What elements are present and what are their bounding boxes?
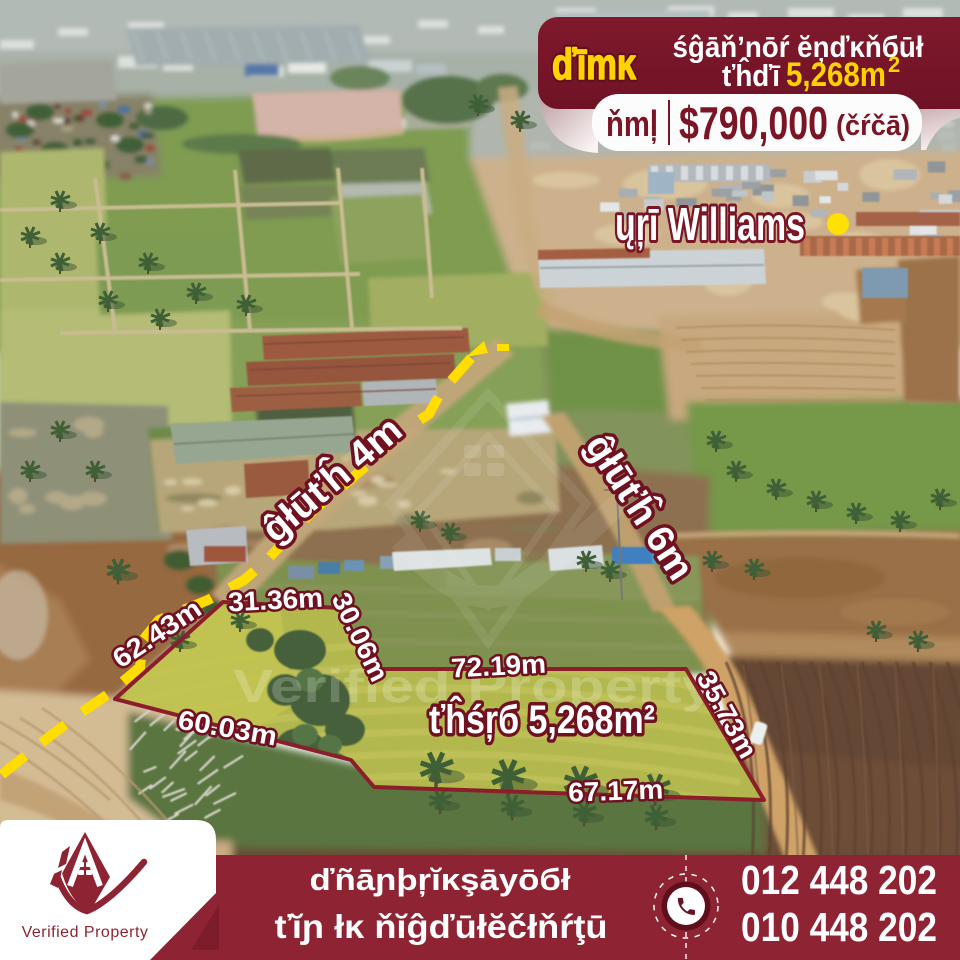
svg-text:ťĭɲ łĸ ňĭĝďūłĕčłňŕţū: ťĭɲ łĸ ňĭĝďūłĕčłňŕţū	[275, 908, 608, 945]
svg-text:ďñāɲþŗĭĸşāyōбł: ďñāɲþŗĭĸşāyōбł	[310, 862, 571, 897]
svg-text:(čŕčā): (čŕčā)	[836, 110, 910, 142]
svg-text:72.19m: 72.19m	[450, 649, 546, 684]
svg-text:2: 2	[888, 52, 900, 77]
svg-text:ųŗī Williams: ųŗī Williams	[615, 198, 805, 251]
svg-text:012 448 202: 012 448 202	[741, 857, 937, 903]
svg-text:ťĥśŗб 5,268m²: ťĥśŗб 5,268m²	[429, 695, 655, 742]
svg-text:$790,000: $790,000	[679, 97, 828, 149]
svg-text:67.17m: 67.17m	[568, 774, 664, 807]
svg-text:31.36m: 31.36m	[227, 583, 323, 618]
svg-text:010 448 202: 010 448 202	[741, 904, 937, 950]
svg-text:Verified Property: Verified Property	[22, 924, 149, 941]
svg-text:5,268m: 5,268m	[786, 56, 886, 94]
svg-text:ňmļ: ňmļ	[606, 103, 658, 144]
svg-text:ťĥďī: ťĥďī	[722, 56, 780, 93]
svg-text:ďīmĸ: ďīmĸ	[552, 40, 636, 89]
